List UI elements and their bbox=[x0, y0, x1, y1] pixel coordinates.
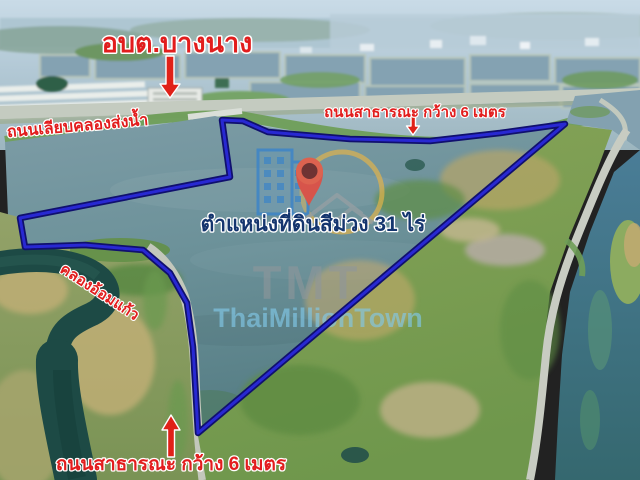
public-road-top-label: ถนนสาธารณะ กว้าง 6 เมตร bbox=[324, 104, 507, 121]
org-label: อบต.บางนาง bbox=[102, 28, 253, 58]
watermark-abbr: TMT bbox=[253, 256, 362, 309]
aerial-land-listing-photo: TMT ThaiMillionTown bbox=[0, 0, 640, 480]
public-road-bottom-label: ถนนสาธารณะ กว้าง 6 เมตร bbox=[56, 453, 287, 475]
trash-pile-2 bbox=[380, 382, 480, 438]
position-label: ตำแหน่งที่ดินสีม่วง 31 ไร่ bbox=[201, 208, 427, 236]
dome-building bbox=[36, 76, 68, 92]
